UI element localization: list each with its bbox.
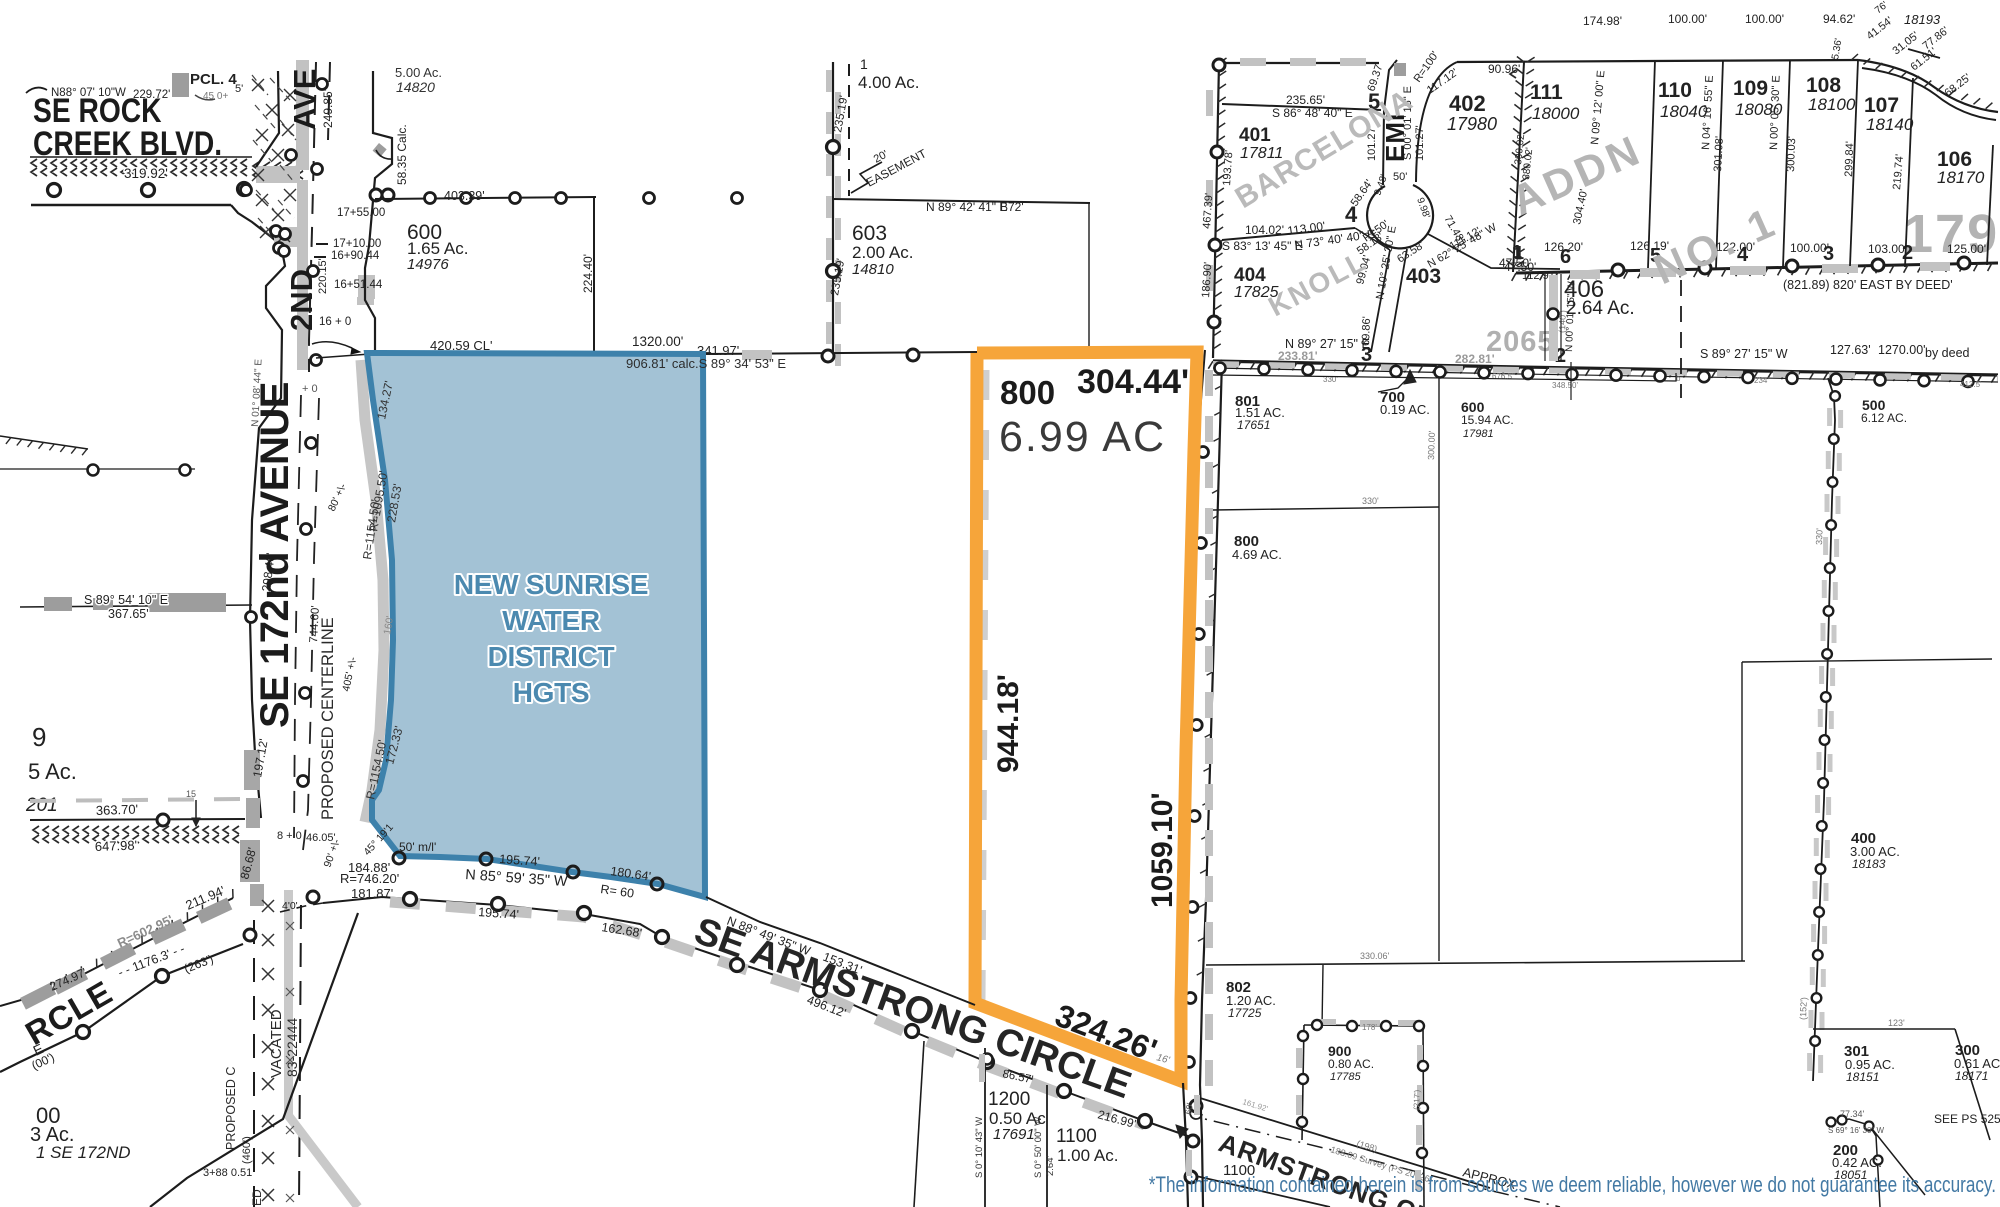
svg-text:(217'): (217'): [1412, 1089, 1422, 1110]
svg-text:18100: 18100: [1808, 95, 1856, 114]
svg-text:5 Ac.: 5 Ac.: [28, 759, 77, 784]
svg-text:46.05': 46.05': [306, 832, 336, 844]
svg-text:467.39': 467.39': [1201, 193, 1215, 230]
svg-text:18170: 18170: [1937, 168, 1985, 187]
svg-text:1320.00': 1320.00': [632, 334, 683, 349]
svg-text:N 89° 42' 41" E: N 89° 42' 41" E: [926, 200, 1007, 214]
svg-text:1100: 1100: [1056, 1126, 1097, 1147]
svg-text:249.85': 249.85': [321, 89, 335, 128]
svg-text:B72': B72': [1000, 200, 1024, 214]
svg-text:50': 50': [1393, 171, 1407, 183]
svg-text:234': 234': [1754, 376, 1769, 385]
svg-text:8 + 0: 8 + 0: [277, 830, 302, 842]
svg-text:1200: 1200: [988, 1089, 1030, 1110]
svg-text:NEW SUNRISE: NEW SUNRISE: [454, 569, 648, 600]
svg-text:104.02': 104.02': [1245, 223, 1284, 237]
svg-text:299.84': 299.84': [1843, 141, 1856, 177]
svg-text:18171: 18171: [1955, 1069, 1988, 1083]
svg-text:330': 330': [1814, 528, 1825, 545]
svg-text:S 0° 50' 00" W: S 0° 50' 00" W: [1033, 1117, 1044, 1178]
svg-text:17980: 17980: [1447, 114, 1497, 134]
svg-text:0.80 AC.: 0.80 AC.: [1328, 1057, 1374, 1071]
svg-text:2065: 2065: [1486, 326, 1555, 358]
svg-text:401: 401: [1239, 125, 1271, 146]
svg-text:83-22444: 83-22444: [284, 1018, 300, 1077]
svg-text:125.00': 125.00': [1947, 242, 1986, 256]
svg-text:6: 6: [1560, 246, 1571, 268]
svg-text:69.86': 69.86': [1360, 316, 1373, 346]
svg-text:58.35 Calc.: 58.35 Calc.: [395, 124, 409, 185]
svg-text:403: 403: [1406, 265, 1441, 288]
svg-text:6.99 AC: 6.99 AC: [999, 413, 1166, 461]
svg-text:14820: 14820: [396, 79, 435, 95]
svg-text:R=746.20': R=746.20': [340, 871, 399, 886]
svg-text:17785: 17785: [1330, 1071, 1361, 1083]
svg-text:412.5': 412.5': [1960, 380, 1982, 389]
svg-text:18193: 18193: [1904, 12, 1941, 27]
svg-text:367.65': 367.65': [108, 607, 149, 621]
svg-text:100.00': 100.00': [1668, 12, 1707, 26]
svg-text:186.90': 186.90': [1200, 262, 1214, 298]
svg-text:676.5': 676.5': [1492, 372, 1514, 381]
svg-text:1270.00': 1270.00': [1878, 343, 1926, 357]
svg-text:S 83° 13' 45" E: S 83° 13' 45" E: [1222, 239, 1303, 253]
svg-text:17981: 17981: [1463, 428, 1494, 440]
svg-text:3: 3: [1361, 344, 1372, 366]
svg-text:195.74': 195.74': [499, 852, 541, 869]
svg-text:330': 330': [1362, 496, 1379, 506]
svg-text:S 89° 27' 15" W: S 89° 27' 15" W: [1700, 347, 1788, 361]
svg-text:SE 172nd AVENUE: SE 172nd AVENUE: [253, 382, 297, 728]
svg-text:2.64': 2.64': [1045, 1156, 1056, 1176]
svg-text:233.81': 233.81': [1278, 349, 1318, 363]
svg-text:403.39': 403.39': [444, 189, 485, 203]
svg-text:178': 178': [1362, 1023, 1377, 1032]
svg-text:b: b: [1676, 374, 1681, 383]
svg-text:193.78': 193.78': [1221, 150, 1235, 187]
svg-text:16+51.44: 16+51.44: [334, 279, 383, 291]
svg-text:17691: 17691: [993, 1126, 1035, 1143]
svg-text:1: 1: [1512, 242, 1522, 262]
svg-text:18151: 18151: [1846, 1070, 1879, 1084]
svg-text:50' m/l': 50' m/l': [399, 840, 436, 854]
svg-text:9: 9: [32, 722, 46, 752]
svg-text:319.92': 319.92': [124, 166, 168, 181]
svg-text:WATER: WATER: [502, 605, 600, 636]
svg-text:15.94 AC.: 15.94 AC.: [1461, 413, 1514, 427]
svg-text:201: 201: [25, 795, 58, 816]
svg-text:SEE PS 525: SEE PS 525: [1934, 1112, 2000, 1126]
svg-text:S 89° 54' 10" E: S 89° 54' 10" E: [84, 593, 168, 607]
svg-text:800: 800: [1000, 374, 1055, 411]
svg-text:4.00 Ac.: 4.00 Ac.: [858, 73, 919, 92]
svg-text:4'0': 4'0': [282, 900, 298, 912]
svg-text:3: 3: [1823, 243, 1834, 265]
svg-text:17651: 17651: [1237, 418, 1270, 432]
svg-text:17+55.00: 17+55.00: [337, 207, 385, 219]
svg-text:363.70': 363.70': [96, 802, 139, 818]
svg-text:2.00 Ac.: 2.00 Ac.: [852, 243, 913, 262]
svg-text:1: 1: [860, 56, 868, 72]
svg-text:77.34': 77.34': [1840, 1109, 1865, 1119]
svg-text:402: 402: [1449, 91, 1486, 116]
svg-text:94.62': 94.62': [1823, 12, 1855, 26]
svg-text:1.00 Ac.: 1.00 Ac.: [1057, 1146, 1118, 1165]
svg-text:90.96': 90.96': [1488, 62, 1520, 76]
svg-text:HGTS: HGTS: [513, 677, 590, 708]
svg-text:603: 603: [852, 222, 887, 245]
svg-text:108: 108: [1806, 74, 1841, 97]
svg-text:100.00': 100.00': [1745, 12, 1784, 26]
svg-text:(152'): (152'): [1798, 997, 1809, 1020]
svg-text:304.44': 304.44': [1077, 363, 1189, 401]
svg-text:(821.89) 820' EAST BY DEED': (821.89) 820' EAST BY DEED': [1783, 278, 1953, 292]
svg-text:14976: 14976: [407, 256, 449, 273]
svg-text:330.06': 330.06': [1360, 951, 1390, 961]
svg-text:111: 111: [1530, 81, 1563, 104]
svg-text:300.03': 300.03': [1785, 136, 1798, 172]
svg-text:348.50': 348.50': [1552, 381, 1578, 390]
svg-text:18000: 18000: [1532, 104, 1580, 123]
svg-text:16 + 0: 16 + 0: [319, 316, 351, 328]
svg-text:404: 404: [1234, 265, 1266, 286]
svg-text:647.98': 647.98': [95, 838, 138, 854]
svg-text:14810: 14810: [852, 261, 894, 278]
svg-text:110: 110: [1658, 79, 1692, 102]
svg-text:18040: 18040: [1660, 102, 1708, 121]
svg-text:300.00': 300.00': [1426, 430, 1437, 460]
svg-text:5.00 Ac.: 5.00 Ac.: [395, 65, 442, 80]
svg-text:*The information contained her: *The information contained herein is fro…: [1149, 1173, 1996, 1198]
svg-text:1059.10': 1059.10': [1146, 792, 1179, 908]
svg-text:2: 2: [1902, 242, 1913, 264]
svg-text:0.19 AC.: 0.19 AC.: [1380, 402, 1430, 417]
svg-text:235.65': 235.65': [1286, 93, 1325, 107]
svg-text:S 0° 10' 43" W: S 0° 10' 43" W: [974, 1117, 985, 1178]
svg-text:17+10.00: 17+10.00: [333, 238, 381, 250]
svg-text:906.81' calc.S 89° 34' 53" E: 906.81' calc.S 89° 34' 53" E: [626, 356, 786, 371]
svg-text:181.87': 181.87': [351, 886, 393, 901]
svg-text:by deed: by deed: [1925, 346, 1970, 360]
svg-text:5': 5': [235, 83, 243, 95]
svg-text:15: 15: [186, 789, 196, 799]
svg-text:101.27': 101.27': [1414, 125, 1426, 161]
svg-text:224.40': 224.40': [581, 254, 595, 293]
svg-text:DISTRICT: DISTRICT: [488, 641, 615, 672]
svg-text:PROPOSED C: PROPOSED C: [224, 1067, 238, 1150]
svg-text:17725: 17725: [1228, 1006, 1262, 1020]
svg-text:127.63': 127.63': [1830, 343, 1871, 357]
svg-text:109: 109: [1733, 77, 1768, 100]
svg-text:ED: ED: [250, 1189, 264, 1206]
svg-text:944.18': 944.18': [992, 674, 1025, 773]
svg-text:174.98': 174.98': [1583, 14, 1622, 28]
svg-text:S 86° 48' 40" E: S 86° 48' 40" E: [1272, 106, 1353, 120]
svg-text:107: 107: [1864, 94, 1899, 117]
svg-text:123': 123': [1888, 1018, 1905, 1028]
svg-text:301.08': 301.08': [1712, 136, 1726, 172]
svg-text:18140: 18140: [1866, 115, 1914, 134]
svg-text:18183: 18183: [1852, 857, 1886, 871]
svg-text:60': 60': [1183, 1102, 1195, 1116]
svg-text:S 69° 16' 30" W: S 69° 16' 30" W: [1828, 1126, 1884, 1135]
svg-text:6.12 AC.: 6.12 AC.: [1861, 411, 1907, 425]
svg-text:2ND: 2ND: [284, 269, 319, 331]
svg-text:VACATED: VACATED: [268, 1009, 285, 1078]
svg-text:AVE: AVE: [287, 69, 322, 130]
svg-text:16+90.44: 16+90.44: [331, 250, 380, 262]
svg-text:PCL. 4: PCL. 4: [190, 71, 237, 88]
svg-text:PROPOSED CENTERLINE: PROPOSED CENTERLINE: [319, 617, 337, 820]
svg-text:+ 0: + 0: [302, 383, 318, 395]
svg-text:4.69 AC.: 4.69 AC.: [1232, 547, 1282, 562]
svg-text:3+88 0.51: 3+88 0.51: [203, 1167, 252, 1179]
svg-text:195.74': 195.74': [478, 905, 520, 922]
svg-text:1 SE 172ND: 1 SE 172ND: [36, 1143, 131, 1162]
